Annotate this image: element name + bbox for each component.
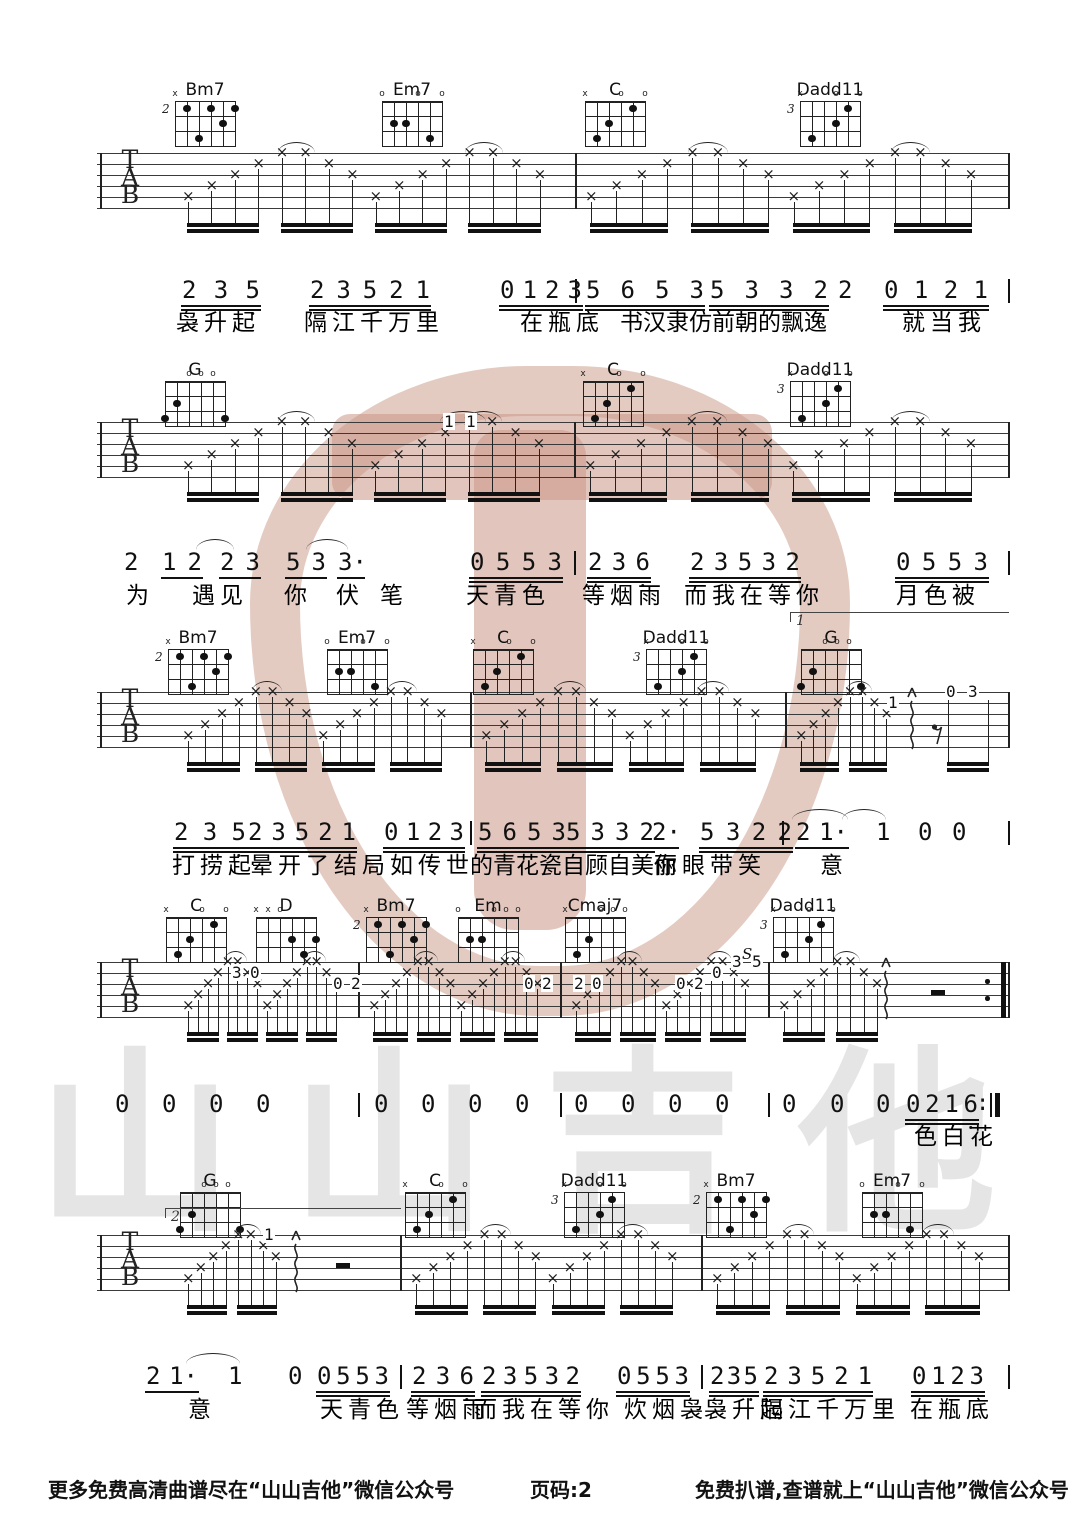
note-stem [297,978,298,1032]
note-stem [188,471,189,492]
beam [187,1032,219,1036]
note-stem [743,169,744,223]
beam [629,762,685,766]
melody-digit: 5 [522,548,536,576]
melody-digit: 5 [246,276,260,304]
chord-fret-line [166,917,227,919]
staff-barline [560,962,562,1018]
beam [786,1305,840,1309]
beam [925,1305,979,1309]
volta-bracket [165,1208,401,1218]
beam [710,1038,746,1042]
beam [237,1305,277,1309]
note-stem [895,427,896,492]
chord-finger-dot [413,1226,421,1234]
melody-group: 235 [710,1362,758,1390]
note-stem [515,967,516,1032]
chord-finger-dot [797,683,805,691]
note-stem [539,449,540,492]
chord-finger-dot [161,415,169,423]
beam [483,1311,536,1315]
note-stem [352,180,353,223]
melody-digit: 0 [912,1362,926,1390]
melody-digit: 2 [778,818,792,846]
repeat-dot [985,996,990,1001]
open-string-icon: o [221,905,231,915]
note-stem [258,169,259,223]
melody-group: 23532 [690,548,800,576]
melody-digit: 5 [295,818,309,846]
melody-digit: 0 [421,1090,435,1118]
melody-group: 23521 [310,276,430,304]
melody-digit: 3 [503,1362,517,1390]
melody-digit: 2 [796,818,810,846]
open-string-icon: o [893,1180,903,1190]
note-stem [804,1240,805,1305]
chord-string-line [706,1192,707,1238]
chord-base-fret: 3 [551,1193,559,1207]
note-stem [238,1240,239,1305]
melody-digit: 2 [710,1362,724,1390]
fret-number: 1 [465,413,477,430]
note-stem [874,708,875,762]
lyric-segment: 为 [126,583,154,609]
beam [322,762,375,766]
chord-string-line [189,381,190,427]
note-stem [632,967,633,1032]
note-stem [737,708,738,762]
note-stem [844,449,845,492]
chord-fret-line [862,1222,923,1223]
lyric-segment: 在瓶底 [910,1397,994,1423]
lyric-segment: 月色被 [896,583,980,609]
note-stem [587,1262,588,1305]
beam [575,1032,611,1036]
chord-fret-line [382,116,443,117]
open-string-icon: o [197,905,207,915]
lyric-segment: 而我在等你 [684,583,824,609]
melody-underline [247,847,357,849]
open-string-icon: o [638,369,648,379]
note-stem [666,438,667,492]
beam [947,762,989,766]
chord-finger-dot [449,1196,457,1204]
open-string-icon: o [857,1180,867,1190]
note-stem [416,1284,417,1305]
chord-fret-line [366,932,427,933]
beam [187,223,259,227]
tab-letter: B [120,993,140,1015]
fret-number: 1 [263,1226,275,1243]
note-stem [576,697,577,762]
note-stem [801,741,802,762]
melody-digit: 2 [545,276,559,304]
fret-number: 2 [350,975,362,992]
note-stem [864,978,865,1032]
lyric-segment: 意 [820,853,848,879]
staff-barline [100,692,102,748]
muted-string-icon: x [170,89,180,99]
melody-digit: 2 [412,1362,426,1390]
chord-string-line [509,649,510,695]
chord-fret-line [706,1192,767,1193]
open-string-icon: o [608,905,618,915]
muted-string-icon: x [468,637,478,647]
melody-tie-arc [186,1353,240,1364]
melody-digit: 3 [545,1362,559,1390]
melody-digit: 3 [974,548,988,576]
melody-digit: 0 [374,1090,388,1118]
chord-fret-line [564,1207,625,1208]
note-stem [837,967,838,1032]
chord-string-line [670,649,671,695]
chord-fret-line [773,947,834,948]
chord-fret-line [585,146,646,147]
note-stem [328,438,329,492]
note-stem [604,1251,605,1305]
beam [417,1032,452,1036]
open-string-icon: o [436,1180,446,1190]
chord-string-line [213,381,214,427]
muted-string-icon: x [580,89,590,99]
melody-digit: 3 [450,818,464,846]
note-stem [971,449,972,492]
note-stem [665,719,666,762]
note-stem [518,1251,519,1305]
melody-digit: 2 [764,1362,778,1390]
beam [281,492,353,496]
chord-fret-line [585,131,646,132]
staff-barline [1008,153,1010,209]
chord-fret-line [583,426,644,427]
chord-finger-dot [798,415,806,423]
chord-finger-dot [591,415,599,423]
melody-underline [689,577,801,579]
note-stem [616,191,617,223]
open-string-icon: o [845,369,855,379]
beam [589,498,667,502]
note-stem [769,1251,770,1305]
melody-digit: 5 [655,276,669,304]
melody-barline [782,821,784,845]
melody-digit: 0 [468,1090,482,1118]
beam [849,768,888,772]
melody-group: 23521 [764,1362,872,1390]
beam [306,1032,338,1036]
chord-fret-line [256,932,317,933]
note-stem [272,697,273,762]
note-stem [655,989,656,1032]
chord-base-fret: 2 [155,650,163,664]
melody-group: 0553 [470,548,562,576]
chord-fret-line [165,396,226,397]
beam [266,1032,298,1036]
melody-group: 0216 [906,1090,978,1118]
beam [783,1032,825,1036]
melody-digit: 2 [838,276,852,304]
note-stem [228,967,229,1032]
note-stem [630,741,631,762]
beam [620,1305,673,1309]
note-stem [944,1240,945,1305]
note-stem [677,1000,678,1032]
note-stem [222,719,223,762]
chord-string-line [327,649,328,695]
melody-digit: 3 [779,276,793,304]
note-stem [594,708,595,762]
note-stem [768,180,769,223]
chord-fret-line [800,101,861,102]
melody-group: 0 [668,1090,682,1118]
beam [620,1311,673,1315]
beam [187,1305,227,1309]
melody-group: 2 [124,548,138,576]
melody-digit: 1 [342,818,356,846]
melody-underline [565,847,655,849]
note-stem [201,1273,202,1305]
chord-string-line [601,917,602,963]
melody-digit: 3 [375,1362,389,1390]
note-stem [522,719,523,762]
chord-finger-dot [572,1226,580,1234]
melody-group: 0 [209,1090,223,1118]
melody-digit: 5 [710,276,724,304]
note-stem [282,158,283,223]
melody-barline [400,1365,402,1389]
melody-digit: 0 [500,276,514,304]
note-stem [742,438,743,492]
note-stem [504,730,505,762]
chord-base-fret: 3 [787,102,795,116]
note-stem [305,427,306,492]
melody-group: 1 [228,1362,242,1390]
note-stem [340,730,341,762]
beam [504,1038,539,1042]
beam [629,768,685,772]
chord-fret-line [583,381,644,383]
open-string-icon: o [804,905,814,915]
melody-digit: 0 [830,1090,844,1118]
beam [552,1311,605,1315]
note-stem [647,730,648,762]
chord-fret-line [790,381,851,382]
lyric-segment: 晕开了结局 [250,853,390,879]
melody-underline [481,1391,581,1393]
melody-digit: 5 [355,1362,369,1390]
note-stem [825,719,826,762]
chord-string-line [585,101,586,147]
chord-fret-line [790,426,851,427]
beam [716,1311,770,1315]
chord-fret-line [175,131,236,132]
chord-fret-line [175,116,236,117]
chord-fret-line [801,679,862,680]
staff-barline [470,692,472,748]
melody-group: 0 [288,1362,302,1390]
lyric-segment: 的青花瓷自顾自美丽 [470,853,677,879]
melody-digit: 2 [220,548,234,576]
note-stem [357,719,358,762]
note-stem [326,978,327,1032]
note-stem [188,1284,189,1305]
note-stem [818,460,819,492]
melody-digit: 0 [617,1362,631,1390]
chord-string-line [533,649,534,695]
beam [894,492,972,496]
melody-group: 0 [621,1090,635,1118]
chord-finger-dot [762,1196,770,1204]
chord-finger-dot [371,683,379,691]
melody-underline [699,847,793,849]
beam [557,762,613,766]
note-stem [535,1262,536,1305]
melody-group: 5332 [710,276,828,304]
melody-digit: 0 [384,818,398,846]
melody-digit: 6 [621,276,635,304]
beam [281,223,353,227]
note-stem [717,1284,718,1305]
melody-digit: 6 [503,818,517,846]
beam [255,762,308,766]
note-stem [787,1240,788,1305]
chord-finger-dot [808,135,816,143]
chord-string-line [837,649,838,695]
melody-digit: 5 [700,818,714,846]
chord-finger-dot [173,400,181,408]
open-string-icon: o [677,637,687,647]
chord-fret-line [366,917,427,918]
beam [800,768,839,772]
note-stem [492,427,493,492]
staff-barline [574,422,576,478]
beam [281,498,353,502]
note-stem [621,967,622,1032]
chord-string-line [202,917,203,963]
chord-string-line [825,649,826,695]
note-stem [323,741,324,762]
chord-fret-line [175,146,236,147]
note-stem [926,1240,927,1305]
note-stem [599,989,600,1032]
chord-finger-dot [478,936,486,944]
melody-digit: 5 [922,548,936,576]
melody-digit: 3 [214,276,228,304]
note-stem [553,1284,554,1305]
melody-digit: 0 [884,276,898,304]
melody-underline [763,1391,873,1393]
note-stem [407,697,408,762]
beam [700,768,756,772]
staff-line [97,714,1010,715]
lyric-segment: 意 [188,1397,216,1423]
fret-number: 0 [675,975,687,992]
beam [483,1305,536,1309]
note-stem [945,169,946,223]
beam [786,1311,840,1315]
chord-fret-line [180,1222,241,1223]
chord-finger-dot [231,105,239,113]
chord-finger-dot [288,936,296,944]
chord-fret-line [382,101,443,103]
chord-finger-dot [654,683,662,691]
melody-digit: 3 [714,548,728,576]
melody-underline [285,577,327,579]
melody-group: 0 [952,818,966,846]
melody-digit: 3 [970,1362,984,1390]
muted-string-icon: x [161,905,171,915]
beam [793,223,871,227]
melody-group: 0 [876,1090,890,1118]
chord-base-fret: 3 [777,382,785,396]
chord-finger-dot [870,1211,878,1219]
melody-group: 0553 [896,548,988,576]
melody-digit: 1 [876,818,890,846]
chord-finger-dot [200,653,208,661]
chord-string-line [800,101,801,147]
open-string-icon: o [855,89,865,99]
melody-group: 0 [162,1090,176,1118]
note-stem [874,1273,875,1305]
lyric-segment: 书汉隶仿前朝的飘逸 [620,310,827,336]
melody-digit: 5 [336,1362,350,1390]
melody-digit: 2 [925,1090,939,1118]
melody-underline [145,1391,199,1393]
lyric-segment: 而我在等你 [474,1397,614,1423]
muted-string-icon: x [701,1180,711,1190]
chord-finger-dot [186,936,194,944]
note-stem [784,1011,785,1032]
beam [237,1311,277,1315]
note-stem [768,449,769,492]
note-stem [218,978,219,1032]
chord-finger-dot [402,120,410,128]
chord-finger-dot [224,653,232,661]
melody-group: 0121 [884,276,988,304]
note-stem [615,460,616,492]
melody-underline [616,1391,690,1393]
melody-group: 0123 [912,1362,984,1390]
melody-barline [768,1093,770,1117]
beam [557,768,613,772]
chord-finger-dot [596,1211,604,1219]
note-stem [692,427,693,492]
note-stem [239,708,240,762]
melody-group: 5332 [566,818,654,846]
open-string-icon: o [820,637,830,647]
chord-fret-line [706,1237,767,1238]
fret-number: 5 [751,953,763,970]
note-stem [307,967,308,1032]
note-stem [467,1251,468,1305]
beam [856,1311,910,1315]
volta-number: 1 [796,613,805,629]
chord-fret-line [706,1222,767,1223]
note-stem [515,438,516,492]
note-stem [445,438,446,492]
chord-fret-line [405,1222,466,1223]
melody-digit: 1 [162,548,176,576]
chord-fret-line [165,426,226,427]
melody-underline [316,1391,390,1393]
chord-string-line [201,381,202,427]
chord-fret-line [473,694,534,695]
melody-underline [795,847,849,849]
beam [460,1032,495,1036]
footer-right-text: 免费扒谱,查谱就上“山山吉他”微信公众号 [695,1474,1069,1503]
note-stem [857,1284,858,1305]
melody-group: 2· [652,818,678,846]
muted-string-icon: x [795,89,805,99]
